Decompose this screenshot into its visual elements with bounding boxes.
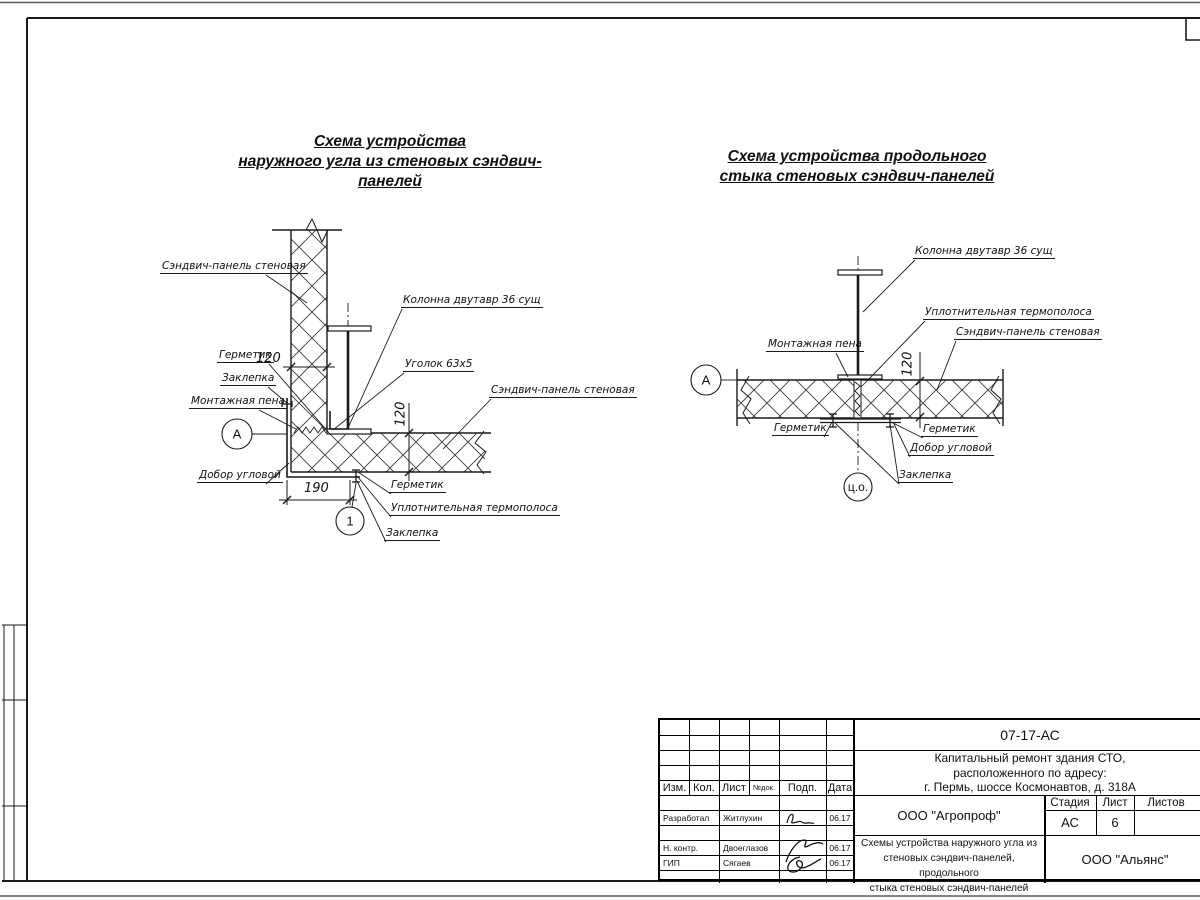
- staff-role: Разработал: [663, 810, 719, 825]
- drawing-sheet: Схема устройства наружного угла из стено…: [0, 0, 1200, 900]
- title-line: стыка стеновых сэндвич-панелей: [720, 168, 995, 185]
- grid-line: [660, 795, 854, 796]
- stage-value: АС: [1044, 810, 1096, 835]
- staff-name: Двоеглазов: [723, 840, 779, 855]
- contractor-name: ООО "Альянс": [1044, 835, 1200, 883]
- title-line: наружного угла из стеновых сэндвич-панел…: [238, 153, 541, 190]
- theme-line: стеновых сэндвич-панелей, продольного: [856, 851, 1042, 881]
- panel-joint: [854, 380, 861, 418]
- detail-marker-label: 1: [346, 514, 353, 529]
- right-detail-title: Схема устройства продольного стыка стено…: [712, 147, 1002, 187]
- label-rivet-bottom: Заклепка: [384, 528, 440, 541]
- stage-label: Стадия: [1044, 795, 1096, 810]
- staff-date: 06.17: [826, 840, 854, 855]
- horizontal-panel-section: [327, 433, 485, 472]
- col-header-izm: Изм.: [660, 780, 689, 795]
- label-foam: Монтажная пена: [766, 339, 864, 352]
- label-thermal-strip: Уплотнительная термополоса: [389, 503, 560, 516]
- center-marker-label: ц.о.: [848, 480, 868, 494]
- grid-line: [719, 720, 720, 883]
- staff-name: Сягаев: [723, 855, 779, 870]
- label-thermal-strip: Уплотнительная термополоса: [923, 307, 1094, 320]
- staff-date: 06.17: [826, 810, 854, 825]
- title-line: Схема устройства продольного: [728, 148, 987, 165]
- col-header-ndok: №док.: [749, 780, 779, 795]
- staff-name: Житлухин: [723, 810, 779, 825]
- label-rivet: Заклепка: [897, 470, 953, 483]
- sheet-label: Лист: [1096, 795, 1134, 810]
- dim-panel-thickness: 120: [394, 402, 409, 427]
- staff-role: Н. контр.: [663, 840, 719, 855]
- signature: [785, 811, 817, 827]
- grid-line: [660, 735, 854, 736]
- doc-number: 07-17-АС: [854, 720, 1200, 750]
- col-header-podp: Подп.: [779, 780, 826, 795]
- grid-line: [660, 870, 854, 871]
- label-corner-trim: Добор угловой: [197, 470, 283, 483]
- i-beam-column: [327, 303, 371, 434]
- dim-corner-width: 190: [304, 481, 329, 496]
- label-sealant-right: Герметик: [921, 424, 978, 437]
- theme-line: стыка стеновых сэндвич-панелей: [856, 881, 1042, 896]
- project-description: Капитальный ремонт здания СТО, расположе…: [858, 751, 1200, 795]
- dim-panel-thickness: 120: [901, 352, 916, 377]
- right-detail-drawing: [691, 256, 1003, 501]
- label-foam: Монтажная пена: [189, 396, 287, 409]
- grid-line: [660, 765, 854, 766]
- corner-doc-box: [1186, 19, 1200, 40]
- label-sealant-left: Герметик: [772, 423, 829, 436]
- title-block: Изм. Кол. Лист №док. Подп. Дата Разработ…: [658, 718, 1200, 881]
- org-name: ООО "Агропроф": [854, 795, 1044, 835]
- theme-line: Схемы устройства наружного угла из: [856, 836, 1042, 851]
- axis-marker-label: А: [233, 427, 242, 442]
- col-header-list: Лист: [719, 780, 749, 795]
- title-line: Схема устройства: [314, 133, 466, 150]
- grid-line: [660, 825, 854, 826]
- project-line: г. Пермь, шоссе Космонавтов, д. 318А: [858, 780, 1200, 795]
- col-header-kol: Кол.: [689, 780, 719, 795]
- axis-marker-label: А: [702, 373, 711, 388]
- label-wall-panel: Сэндвич-панель стеновая: [160, 261, 308, 274]
- i-beam-column: [838, 256, 882, 472]
- left-margin-cells: [2, 625, 27, 881]
- bottom-trim: [820, 419, 901, 423]
- project-line: расположенного по адресу:: [858, 766, 1200, 781]
- label-sealant-bottom: Герметик: [389, 480, 446, 493]
- sheet-number: 6: [1096, 810, 1134, 835]
- grid-line: [660, 750, 854, 751]
- project-line: Капитальный ремонт здания СТО,: [858, 751, 1200, 766]
- staff-role: ГИП: [663, 855, 719, 870]
- left-detail-title: Схема устройства наружного угла из стено…: [228, 132, 552, 192]
- staff-date: 06.17: [826, 855, 854, 870]
- label-rivet-top: Заклепка: [220, 373, 276, 386]
- label-wall-panel: Сэндвич-панель стеновая: [954, 327, 1102, 340]
- sheets-label: Листов: [1134, 795, 1198, 810]
- sheet-theme: Схемы устройства наружного угла из стено…: [856, 836, 1042, 882]
- label-column: Колонна двутавр 36 сущ: [913, 246, 1055, 259]
- label-corner-trim: Добор угловой: [908, 443, 994, 456]
- dim-wall-thickness: 120: [256, 351, 281, 366]
- label-wall-panel-2: Сэндвич-панель стеновая: [489, 385, 637, 398]
- col-header-data: Дата: [826, 780, 854, 795]
- panel-section: [737, 380, 1003, 418]
- signature: [780, 853, 824, 877]
- label-angle: Уголок 63х5: [403, 359, 474, 372]
- label-column: Колонна двутавр 36 сущ: [401, 295, 543, 308]
